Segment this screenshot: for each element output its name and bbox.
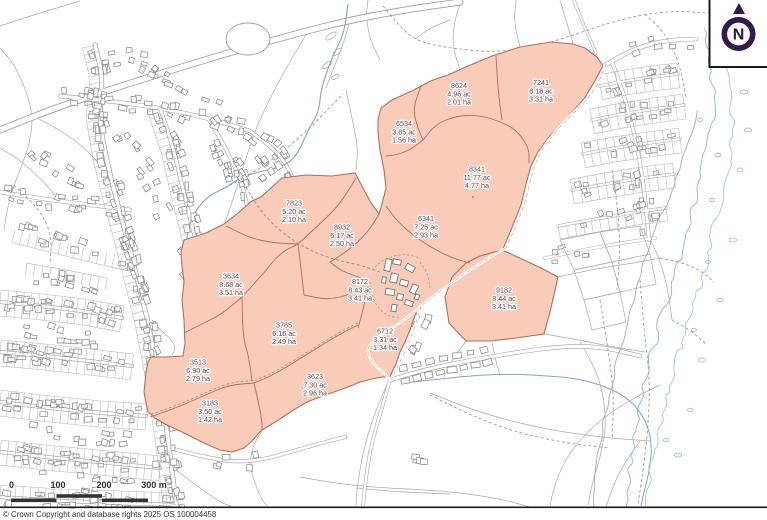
svg-text:2.79 ha: 2.79 ha — [186, 374, 210, 383]
svg-text:100: 100 — [50, 480, 65, 490]
svg-text:200: 200 — [96, 480, 111, 490]
svg-text:3.31 ha: 3.31 ha — [529, 95, 553, 104]
svg-text:N: N — [733, 27, 745, 44]
svg-text:2.01 ha: 2.01 ha — [447, 98, 471, 107]
svg-text:3.41 ha: 3.41 ha — [348, 294, 372, 303]
svg-text:0: 0 — [9, 480, 14, 490]
svg-text:3.41 ha: 3.41 ha — [492, 302, 516, 311]
svg-text:1.34 ha: 1.34 ha — [373, 343, 397, 352]
svg-text:2.10 ha: 2.10 ha — [282, 215, 306, 224]
svg-text:3.51 ha: 3.51 ha — [219, 288, 243, 297]
svg-text:4.77 ha: 4.77 ha — [465, 181, 489, 190]
svg-text:2.50 ha: 2.50 ha — [330, 239, 354, 248]
svg-text:1.56 ha: 1.56 ha — [392, 136, 416, 145]
svg-text:2.96 ha: 2.96 ha — [303, 389, 327, 398]
svg-text:300 m: 300 m — [141, 480, 167, 490]
svg-text:2.93 ha: 2.93 ha — [414, 231, 438, 240]
svg-text:© Crown Copyright and database: © Crown Copyright and database rights 20… — [3, 510, 217, 519]
svg-text:2.49 ha: 2.49 ha — [272, 337, 296, 346]
svg-text:1.42 ha: 1.42 ha — [198, 415, 222, 424]
